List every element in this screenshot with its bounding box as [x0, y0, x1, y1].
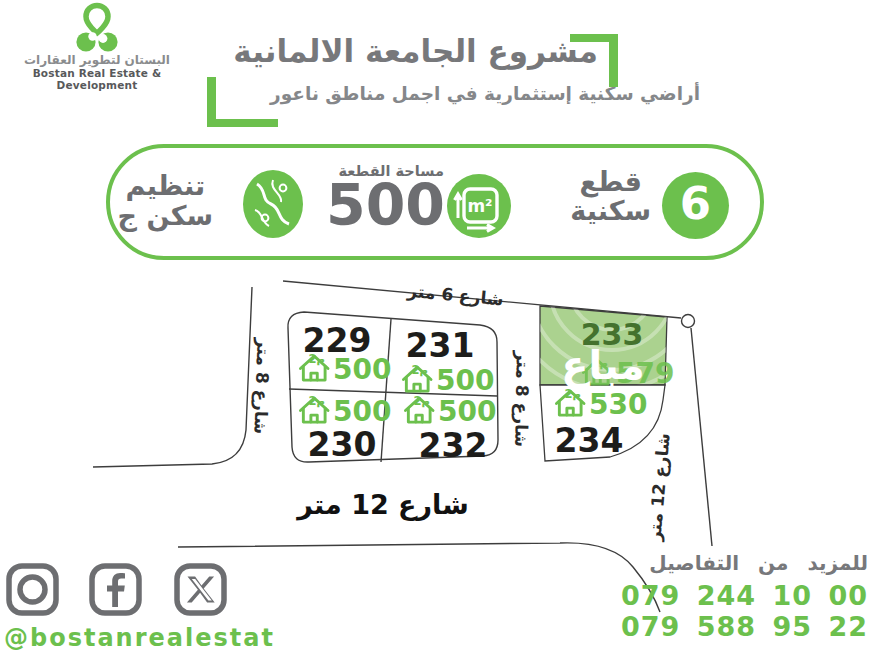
- street-label-middle: شارع 8 متر: [510, 350, 533, 448]
- plot-232-number: 232: [419, 426, 488, 465]
- plot-234-number: 234: [555, 421, 624, 460]
- street-left-line: [93, 287, 252, 467]
- phone-number-1: 079 244 10 00: [621, 580, 868, 611]
- svg-text:م2: م2: [309, 394, 325, 408]
- svg-text:500: 500: [436, 364, 494, 397]
- street-label-left: شارع 8 متر: [249, 337, 273, 435]
- street-bottom-line: [178, 543, 660, 612]
- svg-text:500: 500: [333, 353, 391, 386]
- svg-text:م2: م2: [565, 387, 581, 401]
- social-handle[interactable]: @bostanrealestat: [4, 624, 275, 652]
- plot-231-number: 231: [406, 326, 475, 365]
- svg-text:500: 500: [438, 395, 496, 428]
- svg-text:م2: م2: [414, 394, 430, 408]
- svg-text:م2: م2: [309, 352, 325, 366]
- facebook-icon[interactable]: [89, 563, 142, 620]
- plot-230-number: 230: [308, 425, 377, 464]
- plot-233-sold-badge: مباع: [561, 342, 644, 389]
- flyer-canvas: البستان لتطوير العقارات Bostan Real Esta…: [0, 0, 874, 660]
- svg-text:م2: م2: [412, 363, 428, 377]
- svg-text:500: 500: [333, 395, 391, 428]
- street-right-line: [691, 328, 712, 546]
- street-label-right: شارع 12 متر: [644, 432, 674, 542]
- survey-corner-marker: [682, 315, 695, 328]
- phone-number-2: 079 588 95 22: [621, 611, 868, 642]
- instagram-icon[interactable]: [6, 563, 59, 620]
- svg-text:530: 530: [589, 388, 647, 421]
- street-label-bottom: شارع 12 متر: [295, 489, 469, 521]
- x-icon[interactable]: [174, 563, 227, 620]
- details-label: للمزيد من التفاصيل: [649, 551, 868, 575]
- street-label-top: شارع 6 متر: [406, 281, 505, 311]
